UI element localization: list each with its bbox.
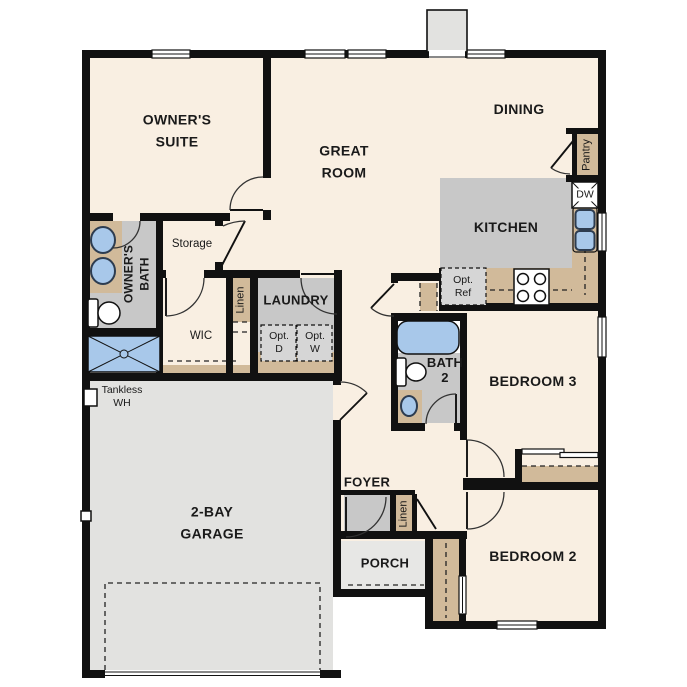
room-label-owners-bath: OWNER'S BATH <box>121 245 152 303</box>
hall-cabinet <box>420 283 437 311</box>
room-label-kitchen: KITCHEN <box>474 217 538 239</box>
label-wic: WIC <box>190 330 212 344</box>
room-label-garage: 2-BAY GARAGE <box>180 501 243 544</box>
kitchen-sink-2 <box>576 231 595 250</box>
toilet-tank-owners <box>88 299 98 327</box>
vanity-sink-1 <box>91 227 115 253</box>
shower-drain <box>120 350 128 358</box>
room-label-bath2: BATH 2 <box>427 356 463 386</box>
bathtub <box>397 321 459 354</box>
garage-door-opening <box>105 670 320 678</box>
room-label-bedroom2: BEDROOM 2 <box>489 546 577 568</box>
burner <box>518 291 529 302</box>
burner <box>535 274 546 285</box>
label-dishwasher: DW <box>574 188 596 201</box>
label-pantry: Pantry <box>580 139 593 171</box>
exterior-cutout <box>333 597 425 630</box>
label-tankless-wh: Tankless WH <box>102 384 143 410</box>
toilet-tank-bath2 <box>396 358 406 386</box>
bedroom3-closet-slider-2 <box>560 453 598 458</box>
burner <box>518 274 529 285</box>
bedroom3-closet-slider-1 <box>522 449 564 454</box>
label-optional-dryer: Opt. D <box>269 330 289 356</box>
bath2-sink <box>401 396 417 416</box>
fireplace <box>427 10 467 58</box>
front-door-area <box>344 495 390 535</box>
room-label-laundry: LAUNDRY <box>263 294 328 309</box>
bedroom3-closet-shelf <box>522 466 598 482</box>
label-linen-lower: Linen <box>397 501 410 528</box>
floor-plan-drawing <box>0 0 687 687</box>
room-label-porch: PORCH <box>361 557 409 572</box>
room-label-dining: DINING <box>494 99 545 121</box>
tankless-water-heater <box>84 389 97 406</box>
room-label-owners-suite: OWNER'S SUITE <box>143 109 211 152</box>
label-optional-washer: Opt. W <box>305 330 325 356</box>
floor-plan: OWNER'S SUITE GREAT ROOM DINING KITCHEN … <box>0 0 687 687</box>
garage-wall-post <box>81 511 91 521</box>
vanity-sink-2 <box>91 258 115 284</box>
room-label-great-room: GREAT ROOM <box>319 140 368 183</box>
kitchen-sink-1 <box>576 210 595 229</box>
label-optional-refrigerator: Opt. Ref <box>453 274 473 300</box>
label-linen-upper: Linen <box>234 287 247 314</box>
toilet-bowl-owners <box>98 302 120 324</box>
wic-shelf <box>163 365 252 374</box>
burner <box>535 291 546 302</box>
room-label-foyer: FOYER <box>344 476 390 491</box>
room-label-bedroom3: BEDROOM 3 <box>489 371 577 393</box>
toilet-bowl-bath2 <box>406 363 426 381</box>
label-storage: Storage <box>172 238 212 252</box>
